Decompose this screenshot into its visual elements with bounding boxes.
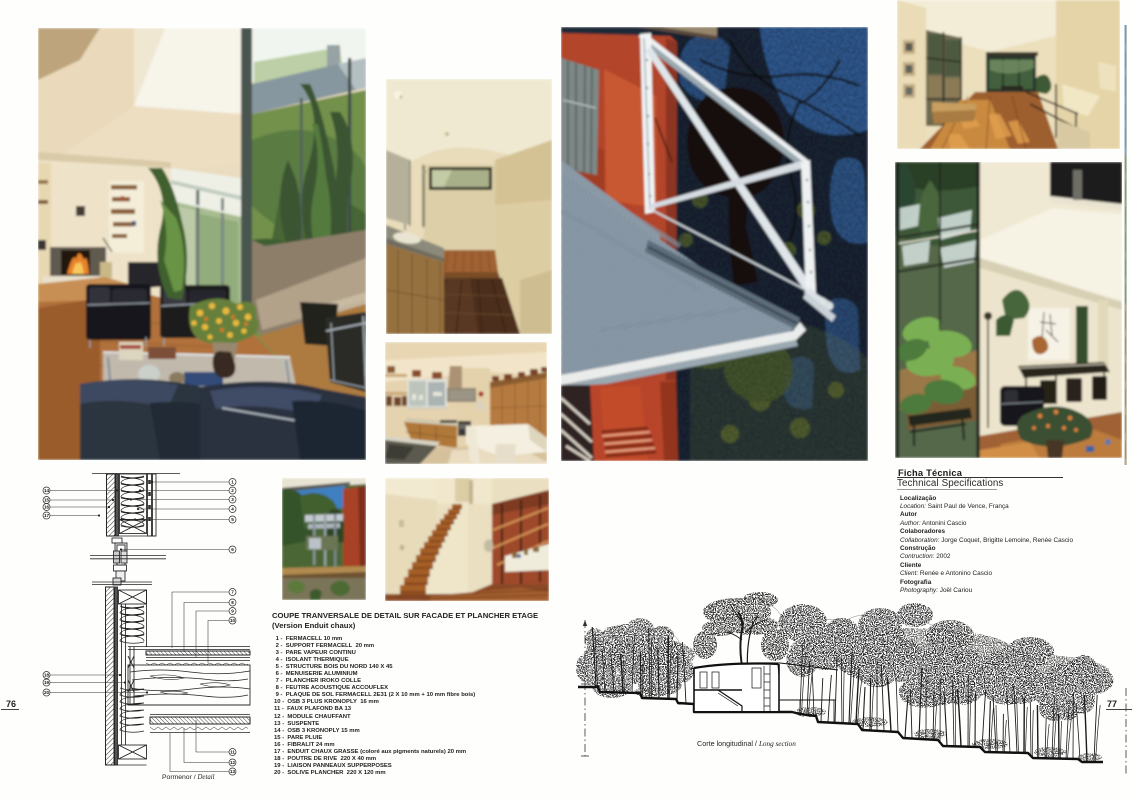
svg-text:2: 2 xyxy=(231,488,234,493)
svg-text:5: 5 xyxy=(231,517,234,522)
svg-text:20: 20 xyxy=(44,690,50,695)
svg-text:12: 12 xyxy=(230,760,236,765)
svg-text:6: 6 xyxy=(231,547,234,552)
svg-text:16: 16 xyxy=(44,505,50,510)
svg-text:18: 18 xyxy=(44,673,50,678)
svg-text:11: 11 xyxy=(230,750,235,755)
svg-text:8: 8 xyxy=(231,600,234,605)
svg-text:9: 9 xyxy=(231,609,234,614)
svg-text:7: 7 xyxy=(231,590,234,595)
svg-text:19: 19 xyxy=(44,680,50,685)
svg-text:3: 3 xyxy=(231,497,234,502)
svg-text:1: 1 xyxy=(231,480,234,485)
svg-text:10: 10 xyxy=(230,618,236,623)
svg-text:15: 15 xyxy=(44,498,50,503)
svg-text:17: 17 xyxy=(44,513,50,518)
svg-text:13: 13 xyxy=(230,769,236,774)
svg-text:4: 4 xyxy=(231,507,234,512)
svg-text:14: 14 xyxy=(44,488,50,493)
